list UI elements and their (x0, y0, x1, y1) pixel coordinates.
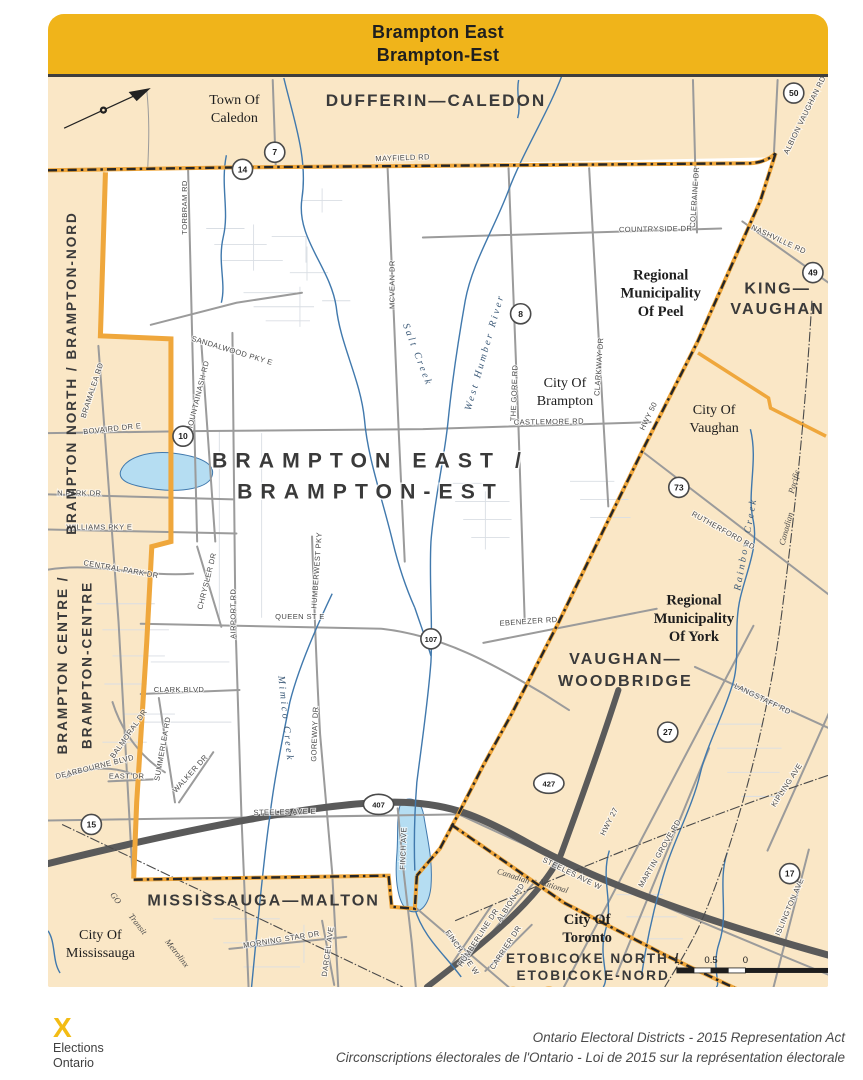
credit-english: Ontario Electoral Districts - 2015 Repre… (336, 1028, 845, 1048)
svg-text:427: 427 (543, 779, 556, 788)
municipality-label: Caledon (211, 110, 258, 126)
highway-shield-15: 15 (81, 814, 101, 834)
svg-text:10: 10 (178, 431, 188, 441)
road-label: COUNTRYSIDE DR (619, 224, 693, 234)
footer: X Elections Ontario Ontario Electoral Di… (48, 1008, 845, 1074)
municipality-label: Municipality (654, 611, 735, 627)
highway-shield-27: 27 (658, 722, 678, 742)
highway-shield-427: 427 (534, 773, 564, 793)
road-label: GOREWAY DR (309, 706, 320, 762)
adjacent-district-label: MISSISSAUGA—MALTON (147, 892, 380, 910)
adjacent-district-label: WOODBRIDGE (558, 672, 693, 690)
municipality-label: Toronto (562, 930, 612, 946)
svg-text:73: 73 (674, 482, 684, 492)
road-label: CASTLEMORE RD (514, 417, 585, 427)
road-label: AIRPORT RD (228, 589, 237, 639)
svg-text:27: 27 (663, 727, 673, 737)
svg-text:14: 14 (238, 164, 248, 174)
road-label: FINCH AVE (398, 827, 409, 870)
map-title-banner: Brampton East Brampton-Est (48, 14, 828, 77)
svg-text:407: 407 (372, 800, 385, 809)
elections-ontario-wordmark: Elections Ontario (53, 1041, 104, 1071)
adjacent-district-label: BRAMPTON NORTH / BRAMPTON-NORD (64, 211, 79, 535)
road-label: MCVEAN DR (388, 260, 397, 309)
highway-shield-407: 407 (363, 794, 393, 814)
road-label: TORBRAM RD (180, 180, 189, 235)
municipality-label: Vaughan (689, 420, 738, 436)
professors-lake (120, 453, 212, 491)
municipality-label: Mississauga (66, 945, 136, 961)
credit-french: Circonscriptions électorales de l'Ontari… (336, 1048, 845, 1068)
municipality-label: Municipality (621, 286, 702, 302)
municipality-label: Regional (666, 593, 721, 609)
adjacent-district-label: DUFFERIN—CALEDON (326, 91, 547, 110)
adjacent-district-label: BRAMPTON CENTRE / (55, 575, 70, 754)
svg-text:17: 17 (785, 869, 795, 879)
municipality-label: Town Of (209, 92, 260, 108)
highway-shield-7: 7 (265, 142, 285, 162)
municipality-label: City Of (79, 927, 122, 943)
adjacent-district-label: ETOBICOKE NORTH / (506, 951, 680, 966)
municipality-label: Of York (669, 629, 720, 645)
map-canvas: Salt CreekWest Humber RiverMimico CreekR… (48, 77, 828, 987)
scale-tick-label: 1 (674, 955, 679, 966)
adjacent-district-label: VAUGHAN— (569, 650, 682, 668)
svg-text:50: 50 (789, 88, 799, 98)
highway-shield-17: 17 (780, 864, 800, 884)
adjacent-district-label: KING— (744, 280, 810, 298)
municipality-label: Brampton (537, 393, 593, 409)
svg-text:7: 7 (272, 147, 277, 157)
map-credits: Ontario Electoral Districts - 2015 Repre… (336, 1028, 845, 1069)
map-svg: Salt CreekWest Humber RiverMimico CreekR… (48, 77, 828, 987)
municipality-label: City Of (693, 402, 736, 418)
scale-tick-label: 0 (743, 955, 748, 966)
municipality-label: Of Peel (638, 304, 684, 320)
highway-shield-50: 50 (784, 83, 804, 103)
svg-text:49: 49 (808, 268, 818, 278)
district-name: BRAMPTON-EST (237, 480, 504, 503)
svg-text:8: 8 (518, 309, 523, 319)
district-name: BRAMPTON EAST / (212, 449, 529, 472)
highway-shield-73: 73 (669, 477, 689, 497)
road-label: CLARK BLVD (154, 685, 205, 694)
adjacent-district-label: BRAMPTON-CENTRE (79, 581, 94, 749)
highway-shield-10: 10 (173, 426, 193, 446)
svg-text:107: 107 (425, 635, 438, 644)
highway-shield-8: 8 (511, 304, 531, 324)
district-title-fr: Brampton-Est (377, 44, 500, 67)
district-title-en: Brampton East (372, 21, 504, 44)
scale-tick-label: 0.5 (704, 955, 717, 966)
municipality-label: City Of (564, 912, 611, 928)
road-label: STEELES AVE E (253, 807, 316, 817)
road-label: EAST DR (109, 771, 145, 780)
elections-ontario-logo: X Elections Ontario (53, 1016, 104, 1071)
adjacent-district-label: VAUGHAN (730, 300, 824, 318)
elections-ontario-x-icon: X (53, 1016, 104, 1040)
map-frame: Brampton East Brampton-Est (48, 14, 828, 987)
highway-shield-14: 14 (232, 159, 252, 179)
road-label: QUEEN ST E (275, 612, 325, 621)
road-label: MAYFIELD RD (375, 152, 430, 163)
highway-shield-107: 107 (421, 629, 441, 649)
adjacent-district-label: ETOBICOKE-NORD (517, 968, 670, 983)
municipality-label: City Of (544, 375, 587, 391)
svg-text:15: 15 (87, 819, 97, 829)
highway-shield-49: 49 (803, 263, 823, 283)
municipality-label: Regional (633, 268, 688, 284)
